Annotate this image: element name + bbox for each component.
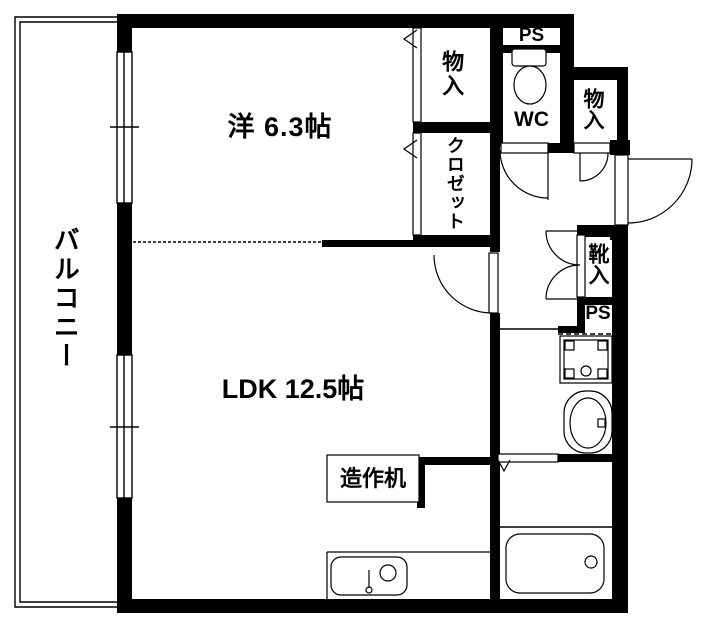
ldk-door-swing-arc (434, 255, 492, 313)
wall-left-lower (117, 498, 132, 613)
shoe-cabinet-door-swing-arc (546, 265, 580, 299)
wall-wc-right (560, 14, 574, 153)
wall-left-pier (117, 203, 132, 355)
wc-door-swing-arc (500, 150, 548, 198)
shoe-cabinet-front (577, 235, 585, 297)
toilet-icon (512, 49, 546, 104)
thick-walls (117, 14, 630, 613)
entrance-door-leaf (615, 155, 628, 225)
wall-ps-mid-bottom (558, 326, 585, 333)
room-label-wc: WC (503, 109, 560, 131)
washing-machine-pan-icon (560, 336, 612, 383)
room-label-storage-entry: 物入 (581, 88, 603, 130)
room-label-storage-top: 物入 (440, 50, 463, 98)
storage-entry-door-swing-arc (580, 153, 608, 181)
storage-top-door-front (413, 28, 421, 122)
floor-plan: 洋 6.3帖 LDK 12.5帖 バルコニー 物入 クロゼット PS WC 物入… (0, 0, 706, 627)
wall-bottom (117, 599, 628, 613)
room-label-shoe-cabinet: 靴入 (586, 243, 608, 285)
kitchen-counter-icon (327, 552, 490, 599)
room-label-closet: クロゼット (445, 136, 464, 231)
room-label-ldk: LDK 12.5帖 (198, 375, 388, 403)
label-built-in-desk: 造作机 (327, 455, 419, 502)
entrance-door-swing-arc (628, 159, 692, 223)
washbasin-icon (564, 391, 612, 453)
wall-wc-door-stub (548, 143, 574, 153)
room-label-ps-mid: PS (583, 304, 613, 324)
room-label-western-room: 洋 6.3帖 (190, 113, 370, 141)
wall-corner-block-upper (610, 140, 630, 155)
wall-right (612, 225, 628, 599)
bathtub-icon (506, 534, 604, 593)
wall-room-divider (322, 240, 413, 247)
wall-left-upper (117, 14, 132, 53)
shoe-cabinet-door-swing-arc (546, 231, 580, 265)
storage-entry-door-threshold (574, 143, 610, 153)
wc-door-threshold (501, 143, 548, 153)
kitchen-sink-icon (331, 557, 407, 595)
room-label-balcony: バルコニー (51, 226, 78, 371)
closet-door-front (413, 133, 421, 235)
window-icon (110, 355, 139, 498)
bathroom-door-opening (498, 454, 558, 462)
wall-bath-divider (558, 454, 612, 462)
wall-closet-bottom (413, 235, 500, 247)
wall-storage-entry-right (617, 67, 628, 144)
room-label-ps-top: PS (503, 26, 560, 46)
window-icon (110, 52, 139, 203)
wall-storage-closet-divider (413, 122, 500, 133)
wall-kitchen-horizontal (420, 457, 490, 465)
ldk-door-leaf (489, 253, 498, 313)
